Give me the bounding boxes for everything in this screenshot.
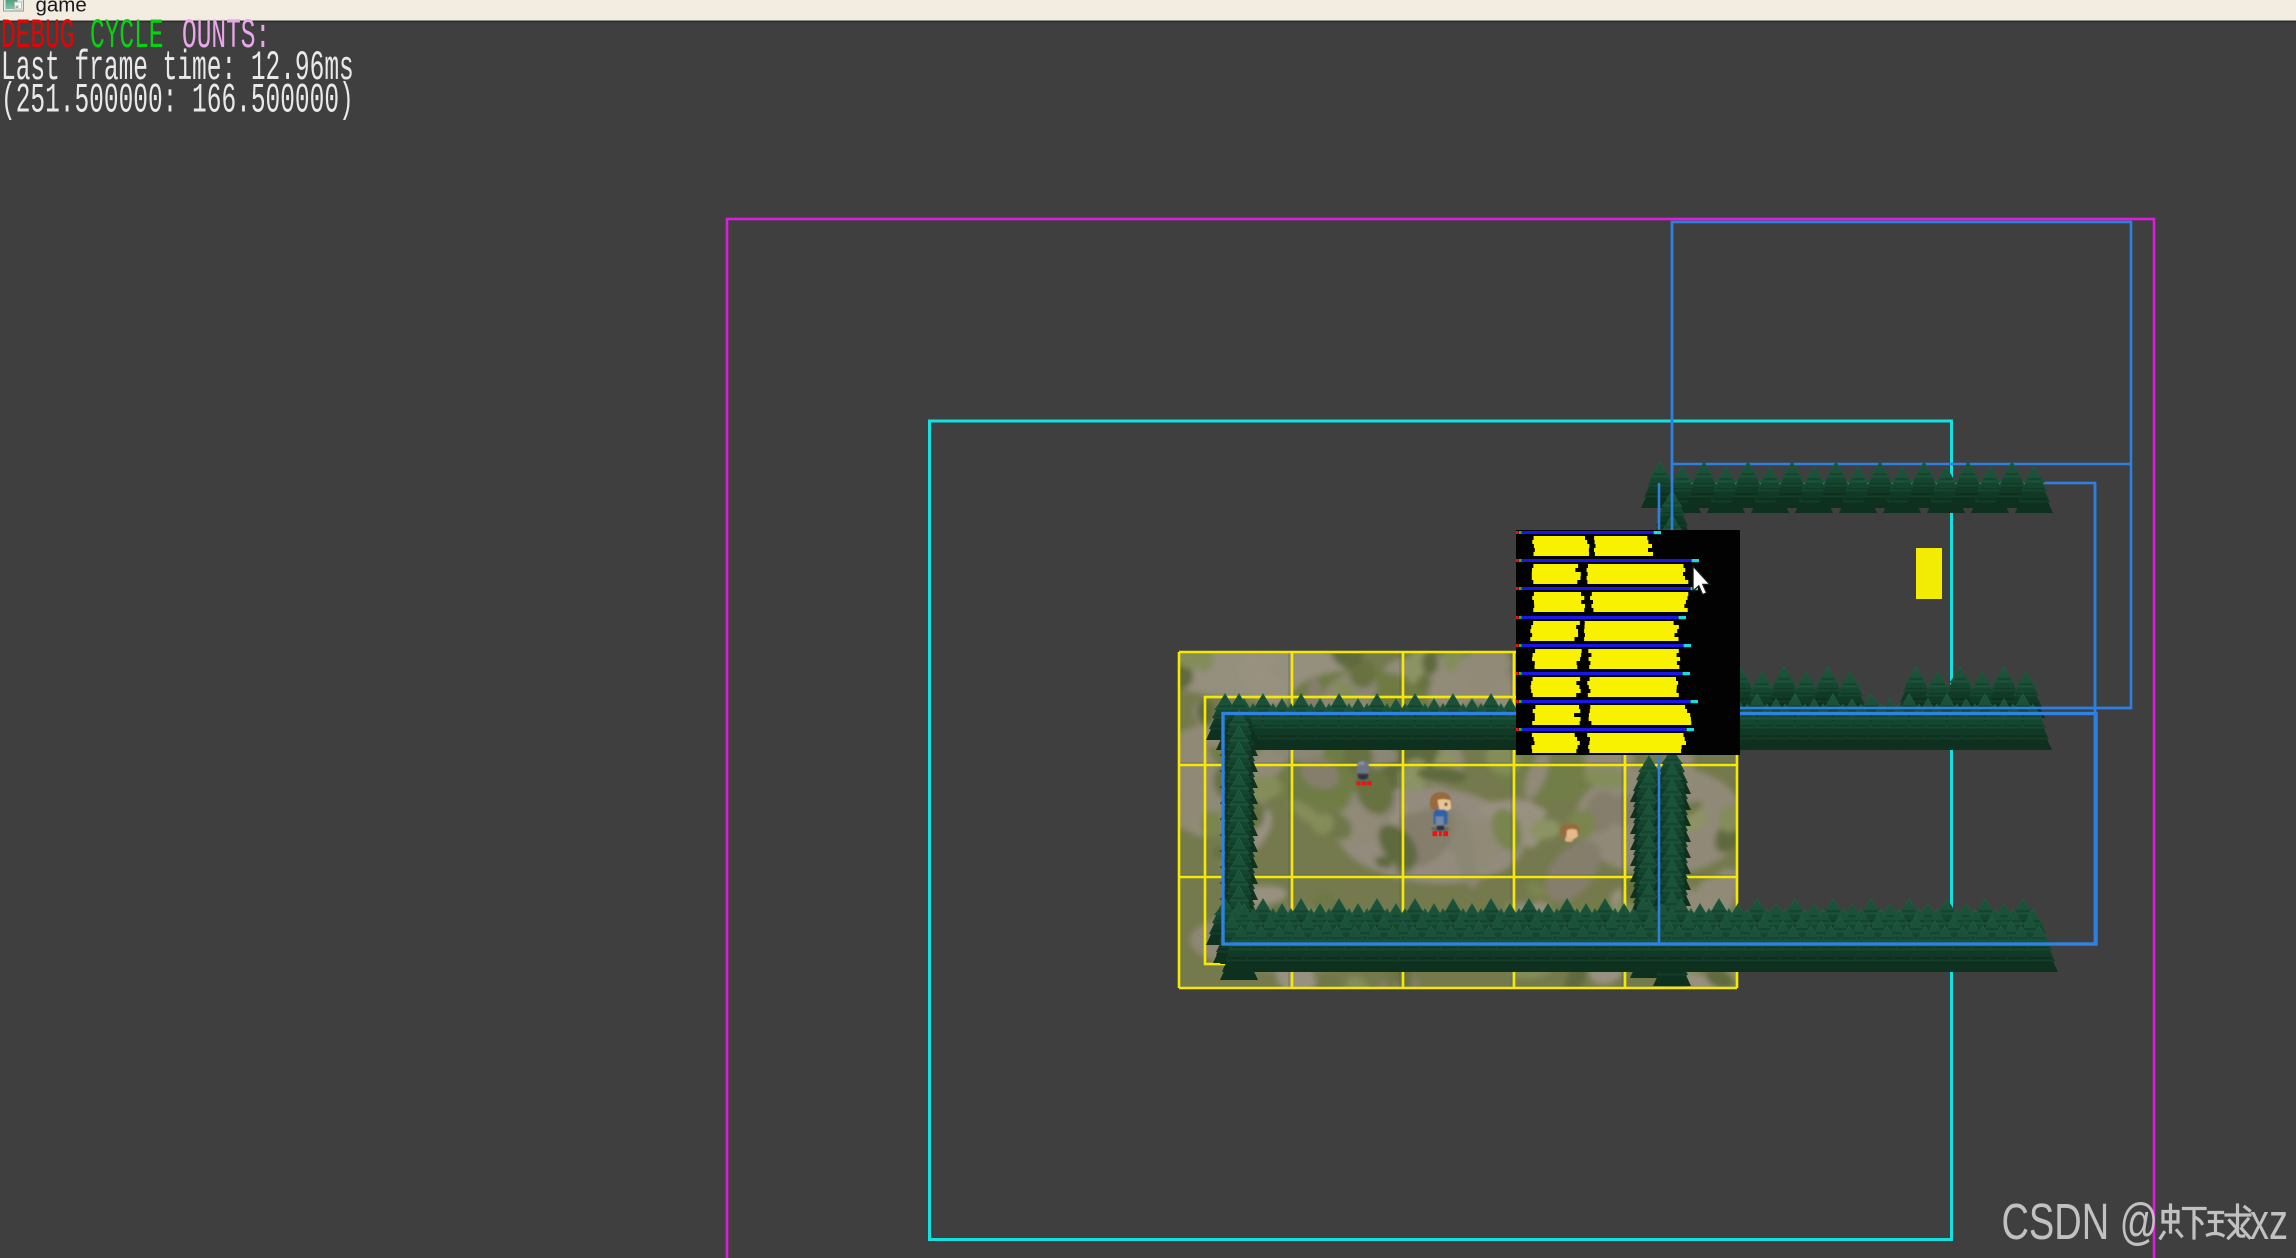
svg-text:(251.500000: 166.500000): (251.500000: 166.500000) — [1, 77, 354, 125]
svg-text:xz: xz — [2250, 1192, 2288, 1250]
svg-text:CSDN @: CSDN @ — [2002, 1192, 2159, 1250]
